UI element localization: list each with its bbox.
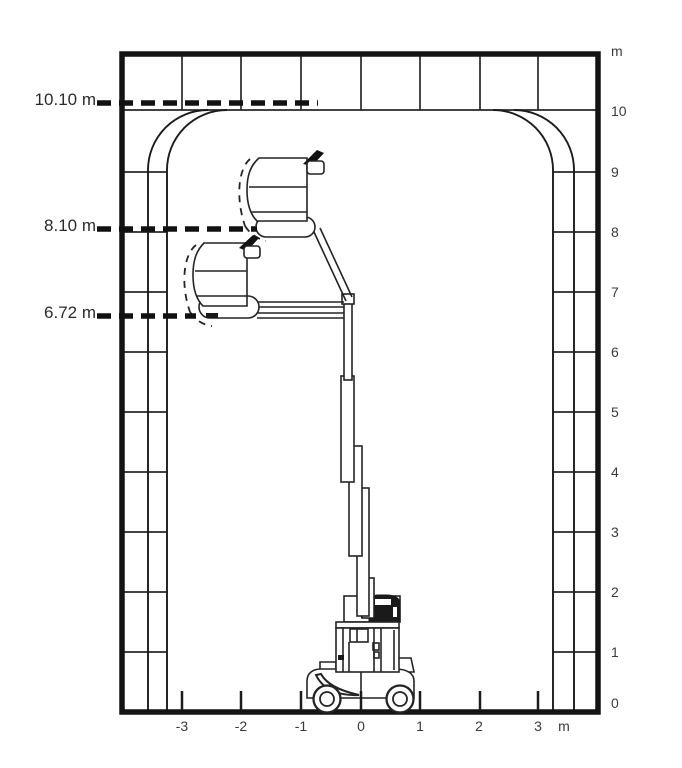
platform-lower-control-box bbox=[244, 246, 260, 258]
rear-wheel-hub bbox=[320, 692, 334, 706]
x-axis-unit-label: m bbox=[558, 718, 570, 734]
y-axis-tick-3: 3 bbox=[611, 524, 619, 540]
hinge-dot bbox=[338, 655, 344, 660]
y-axis-tick-4: 4 bbox=[611, 464, 619, 480]
height-marker-labels: 10.10 m 8.10 m 6.72 m bbox=[35, 90, 96, 322]
x-axis-tick-neg2: -2 bbox=[235, 718, 248, 734]
envelope-left-inner-line bbox=[167, 110, 227, 712]
envelope-right-outer-line bbox=[514, 110, 574, 712]
x-axis-tick-1: 1 bbox=[416, 718, 424, 734]
y-axis-tick-9: 9 bbox=[611, 164, 619, 180]
y-axis-tick-8: 8 bbox=[611, 224, 619, 240]
x-axis-tick-2: 2 bbox=[475, 718, 483, 734]
body-shelf bbox=[336, 622, 399, 628]
working-envelope-diagram: 10.10 m 8.10 m 6.72 m m 10 9 8 7 6 5 4 3… bbox=[0, 0, 682, 768]
envelope-right-inner-line bbox=[493, 110, 553, 712]
height-marker-label-8-10m: 8.10 m bbox=[44, 216, 96, 235]
platform-lower-position bbox=[184, 235, 260, 326]
diagram-canvas: 10.10 m 8.10 m 6.72 m m 10 9 8 7 6 5 4 3… bbox=[0, 0, 682, 768]
x-axis-tick-neg1: -1 bbox=[295, 718, 308, 734]
platform-upper-control-box bbox=[307, 161, 324, 174]
front-wheel-hub bbox=[393, 692, 407, 706]
y-axis-tick-1: 1 bbox=[611, 644, 619, 660]
envelope-left-outer-line bbox=[148, 110, 208, 712]
platform-lower-foot-mark bbox=[206, 313, 218, 318]
y-axis-tick-0: 0 bbox=[611, 695, 619, 711]
y-axis-unit-label: m bbox=[611, 43, 623, 59]
x-axis-labels: -3 -2 -1 0 1 2 3 m bbox=[176, 718, 570, 734]
mast-section-2 bbox=[341, 376, 354, 482]
x-axis-tick-0: 0 bbox=[357, 718, 365, 734]
jib-horizontal-position bbox=[257, 302, 344, 318]
jib-raised-position bbox=[314, 228, 352, 301]
x-axis-ticks bbox=[182, 691, 538, 710]
height-marker-label-10-10m: 10.10 m bbox=[35, 90, 96, 109]
engine-cover-vent bbox=[375, 599, 391, 605]
height-marker-label-6-72m: 6.72 m bbox=[44, 303, 96, 322]
mast-section-1 bbox=[344, 302, 352, 380]
grid-left-band bbox=[124, 172, 167, 652]
y-axis-tick-2: 2 bbox=[611, 584, 619, 600]
y-axis-tick-10: 10 bbox=[611, 103, 627, 119]
y-axis-tick-7: 7 bbox=[611, 284, 619, 300]
jib-raised-upper-chord bbox=[320, 228, 352, 297]
engine-cover-latch bbox=[393, 607, 397, 617]
x-axis-tick-neg3: -3 bbox=[176, 718, 189, 734]
y-axis-labels: m 10 9 8 7 6 5 4 3 2 1 0 bbox=[611, 43, 627, 711]
jib-raised-lower-chord bbox=[314, 232, 346, 301]
telescoping-mast bbox=[341, 294, 374, 618]
mast-boom-lift bbox=[184, 150, 414, 713]
y-axis-tick-6: 6 bbox=[611, 344, 619, 360]
y-axis-tick-5: 5 bbox=[611, 404, 619, 420]
x-axis-tick-3: 3 bbox=[534, 718, 542, 734]
